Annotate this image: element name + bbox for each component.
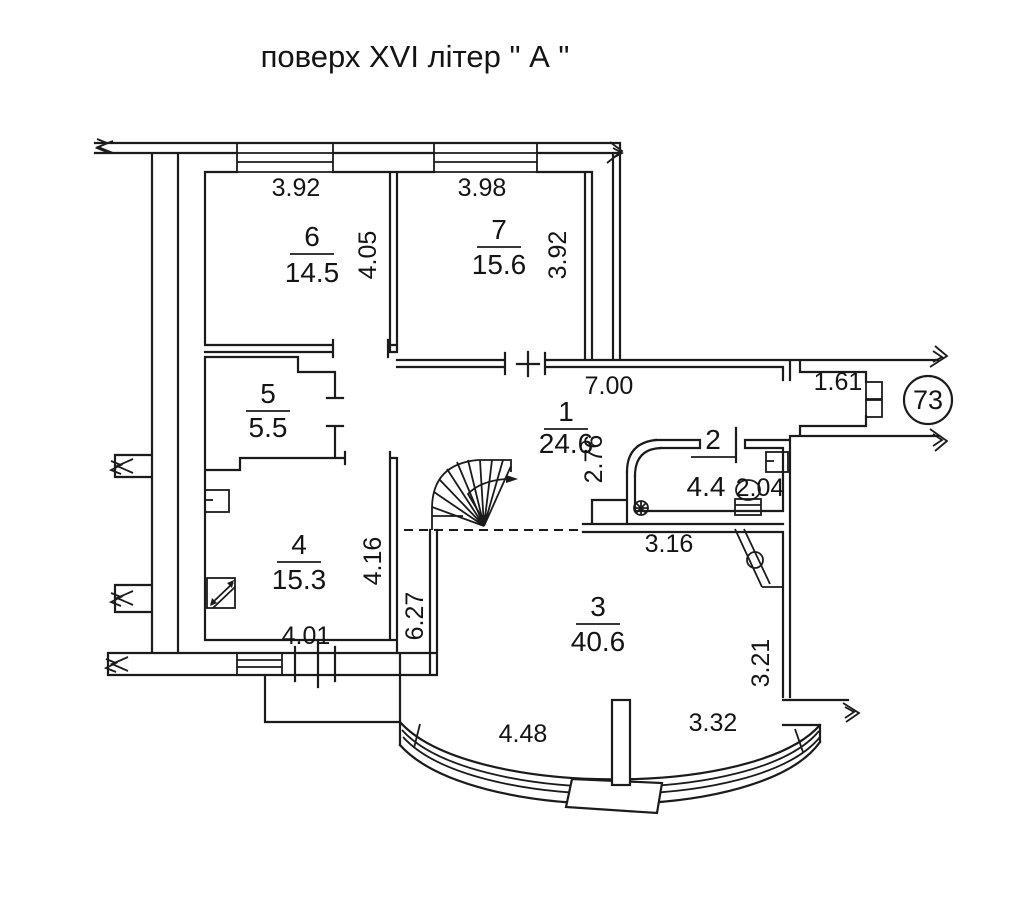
dim-corridor: 7.00 <box>585 372 634 400</box>
room-3-number: 3 <box>590 591 606 622</box>
room-7-area: 15.6 <box>472 249 527 280</box>
room-2-area: 4.4 <box>687 471 726 502</box>
room-4-area: 15.3 <box>272 564 327 595</box>
window-room4-icon <box>237 653 282 675</box>
vent-box-icon <box>205 490 229 512</box>
break-mark-top-left <box>97 139 113 153</box>
apartment-number-badge: 73 <box>904 376 952 424</box>
dim-room4-bottom: 4.01 <box>282 622 331 650</box>
floor-plan-sheet: 73 поверх XVI літер " А " 6 14.5 7 15.6 … <box>0 0 1024 898</box>
room-1-number: 1 <box>558 396 574 427</box>
window-room6-icon <box>237 143 333 172</box>
break-mark-entry-bottom <box>930 429 947 451</box>
walls <box>95 143 938 745</box>
room-2-number: 2 <box>705 424 721 455</box>
entry-door-icon <box>866 382 882 417</box>
column <box>612 700 630 785</box>
dim-room2-front: 3.16 <box>645 530 694 558</box>
floor-drain-icon <box>634 501 648 515</box>
dim-room4-side: 4.16 <box>359 537 387 586</box>
room-5-number: 5 <box>260 378 276 409</box>
dim-room7-top: 3.98 <box>458 174 507 202</box>
room-3-area: 40.6 <box>571 626 626 657</box>
break-mark-entry-top <box>930 346 947 367</box>
washbasin-icon <box>766 452 788 472</box>
dim-corridor-depth: 2.76 <box>580 435 608 484</box>
room-6-number: 6 <box>304 221 320 252</box>
dim-bay-left: 4.48 <box>499 720 548 748</box>
stairs-icon <box>432 460 518 530</box>
dim-right-side: 3.21 <box>747 639 775 688</box>
apartment-number: 73 <box>913 385 943 415</box>
dim-hall-side: 6.27 <box>401 592 429 641</box>
room-5-area: 5.5 <box>249 412 288 443</box>
electric-panel-icon <box>207 578 235 608</box>
room-6-area: 14.5 <box>285 257 340 288</box>
break-marks <box>97 139 947 722</box>
window-room7-icon <box>434 143 537 172</box>
dim-bay-right: 3.32 <box>689 709 738 737</box>
dim-room7-side: 3.92 <box>544 231 572 280</box>
dim-room2-width: 2.04 <box>736 474 785 502</box>
dim-room6-top: 3.92 <box>272 174 321 202</box>
bay-window-icon <box>400 722 820 813</box>
dim-entry: 1.61 <box>814 368 863 396</box>
page-title: поверх XVI літер " А " <box>261 39 570 74</box>
break-mark-bottom-left <box>106 657 128 672</box>
floor-plan-drawing: 73 поверх XVI літер " А " 6 14.5 7 15.6 … <box>0 0 1024 898</box>
room-labels: 6 14.5 7 15.6 5 5.5 1 24.6 2 4.4 4 15.3 … <box>246 214 735 657</box>
dim-room6-side: 4.05 <box>354 231 382 280</box>
break-mark-right-wall <box>843 703 859 722</box>
room-7-number: 7 <box>491 214 507 245</box>
room-4-number: 4 <box>291 529 307 560</box>
fireplace-icon <box>735 529 783 587</box>
